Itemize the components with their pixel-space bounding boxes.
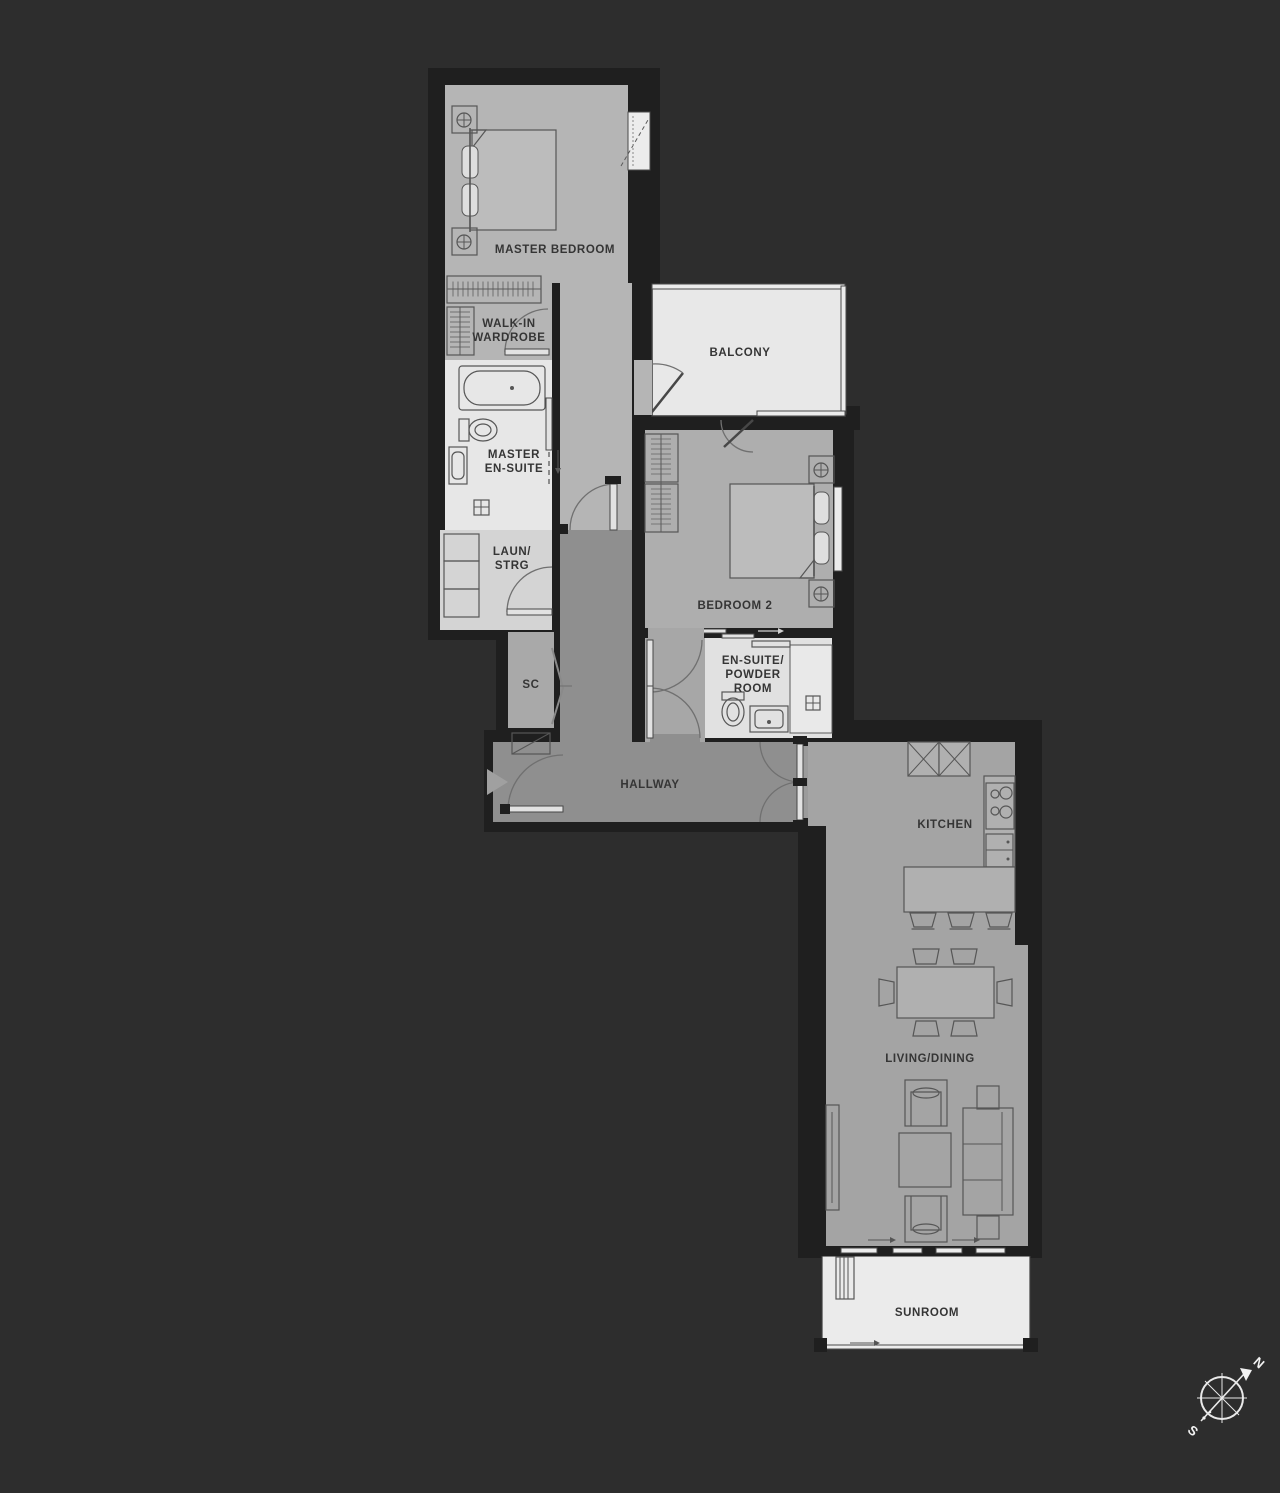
master-bedroom-window xyxy=(628,112,650,170)
laundry-door-leaf xyxy=(507,609,552,615)
vestibule-door-leaf xyxy=(647,686,653,738)
floor-plan-canvas: MASTER BEDROOM WALK-IN WARDROBE MASTER E… xyxy=(0,0,1280,1493)
balcony-window-bottom xyxy=(757,411,845,416)
label-laun: LAUN/ xyxy=(493,546,531,558)
balcony-window-top xyxy=(652,284,845,289)
label-en-suite-powder-1: EN-SUITE/ xyxy=(722,655,784,667)
label-sunroom: SUNROOM xyxy=(895,1307,959,1319)
suite-door-leaf xyxy=(610,484,617,530)
shower-enclosure xyxy=(790,645,832,733)
label-en-suite-powder-2: POWDER xyxy=(725,669,780,681)
sunroom-window-bottom xyxy=(822,1345,1030,1349)
label-master-bedroom: MASTER BEDROOM xyxy=(495,244,615,256)
floor-plan-page: MASTER BEDROOM WALK-IN WARDROBE MASTER E… xyxy=(0,0,1280,1493)
bedroom-2-bed xyxy=(730,484,829,578)
label-walk-in: WALK-IN xyxy=(482,318,535,330)
label-en-suite: EN-SUITE xyxy=(485,463,543,475)
bedroom-2-window xyxy=(834,487,842,571)
floor-sunroom xyxy=(822,1256,1030,1348)
kitchen-door-leaf-bottom xyxy=(797,784,803,820)
label-en-suite-powder-3: ROOM xyxy=(734,683,772,695)
label-master: MASTER xyxy=(488,449,540,461)
label-balcony: BALCONY xyxy=(709,347,770,359)
label-hallway: HALLWAY xyxy=(620,779,679,791)
breakfast-bar xyxy=(904,867,1015,912)
bedroom2-door-leaf xyxy=(647,640,653,692)
wardrobe-door-leaf xyxy=(505,349,549,355)
label-sc: SC xyxy=(522,679,539,691)
kitchen-tall-units xyxy=(908,742,970,776)
label-bedroom-2: BEDROOM 2 xyxy=(697,600,772,612)
floor-vestibule xyxy=(645,638,705,742)
label-kitchen: KITCHEN xyxy=(917,819,972,831)
master-bed xyxy=(462,128,556,232)
label-living-dining: LIVING/DINING xyxy=(885,1053,975,1065)
kitchen-door-leaf-top xyxy=(797,744,803,780)
dining-table xyxy=(897,967,994,1018)
entry-door-leaf xyxy=(508,806,563,812)
balcony-window-right xyxy=(841,286,846,414)
label-strg: STRG xyxy=(495,560,529,572)
floor-corridor xyxy=(560,530,632,742)
floor-master-en-suite xyxy=(445,360,552,530)
label-wardrobe: WARDROBE xyxy=(472,332,545,344)
floor-suite-corridor xyxy=(560,283,632,530)
